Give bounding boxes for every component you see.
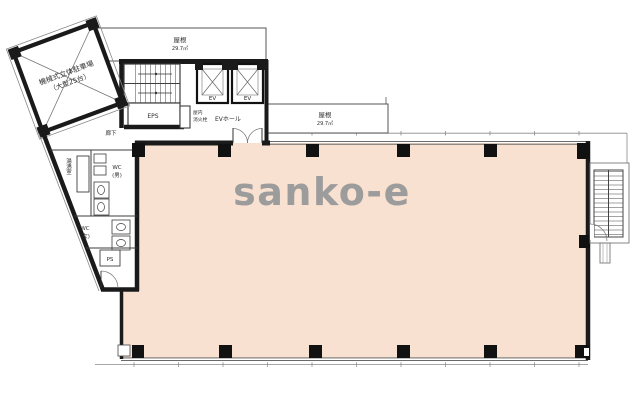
elevator-2-label: EV [244, 96, 251, 102]
elevator-2: EV [230, 62, 265, 103]
wc-men-label-1: WC [112, 165, 121, 171]
floorplan-page: 屋根 29.7㎡ 屋根 29.7㎡ EPS [0, 0, 642, 400]
corridor-label: 廊下 [105, 129, 117, 137]
roof-top-area: 29.7㎡ [172, 45, 188, 52]
small-shaft-box [118, 345, 130, 356]
roof-top-label: 屋根 [174, 35, 188, 44]
hydrant-label-2: 消火栓 [193, 116, 208, 123]
ps-label: PS [107, 257, 114, 263]
watermark: sanko-e [233, 170, 411, 214]
wc-women-label-1: WC [80, 226, 89, 232]
hydrant-label-1: 屋内 [193, 109, 203, 116]
floorplan-drawing: 屋根 29.7㎡ 屋根 29.7㎡ EPS [0, 0, 642, 400]
roof-right-area: 29.7㎡ [317, 120, 333, 127]
balcony-line-bottom [95, 362, 588, 367]
kitchenette-label: 湯沸室 [65, 157, 72, 175]
eps-room: EPS [124, 103, 184, 127]
corner-column-notch [584, 348, 589, 356]
eps-label: EPS [147, 113, 158, 120]
wc-men-label-2: (男) [112, 172, 122, 179]
ev-hall-label: EVホール [215, 116, 241, 123]
roof-top: 屋根 29.7㎡ [97, 28, 266, 61]
elevator-1: EV [195, 62, 230, 103]
elevator-1-label: EV [209, 96, 216, 102]
roof-right-label: 屋根 [319, 110, 333, 119]
wc-women-label-2: (女) [80, 232, 90, 240]
internal-staircase [124, 64, 180, 103]
